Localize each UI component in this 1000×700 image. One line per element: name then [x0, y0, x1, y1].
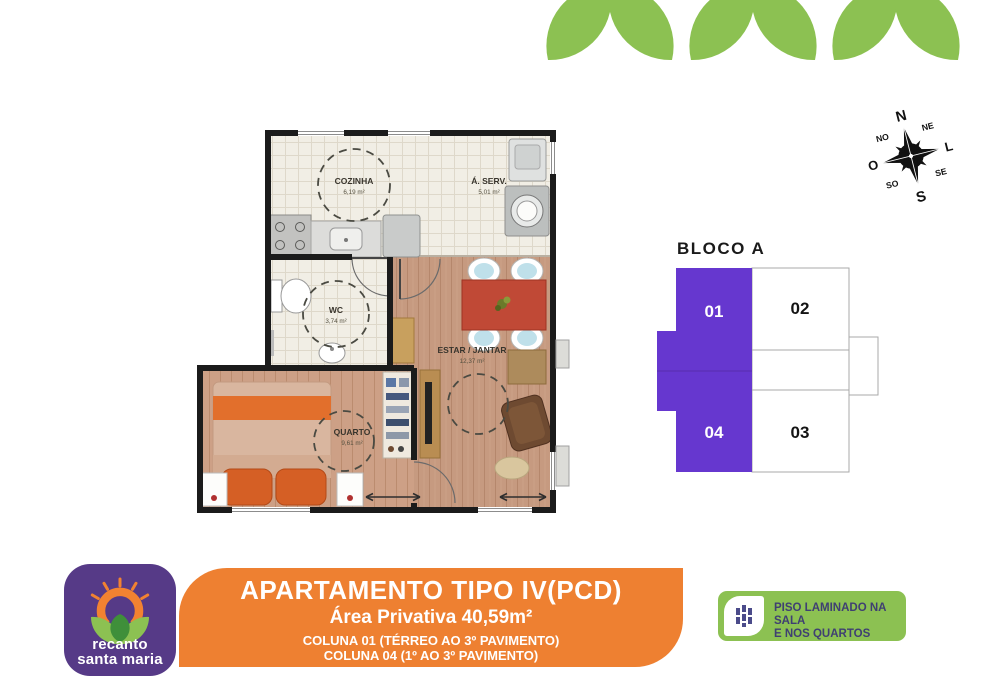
- cabinet-icon: [391, 318, 414, 363]
- compass-n-label: N: [894, 108, 908, 126]
- badge-text-line2: E NOS QUARTOS: [774, 628, 904, 641]
- room-area-quarto: 9,61 m²: [341, 440, 362, 447]
- bloco-title: BLOCO A: [677, 239, 765, 258]
- stove-icon: [269, 215, 311, 256]
- leaves-decoration-icon: [540, 0, 970, 78]
- washing-machine-icon: [505, 186, 549, 236]
- floor-plan: COZINHA 6,19 m² Á. SERV. 5,01 m² WC 3,74…: [190, 118, 590, 538]
- compass-se-label: SE: [934, 166, 948, 179]
- bloco-unit-02-label: 02: [791, 299, 810, 318]
- bloco-unit-01-label: 01: [705, 302, 724, 321]
- banner-coluna1: COLUNA 01 (TÉRREO AO 3º PAVIMENTO): [179, 633, 683, 648]
- banner-note: *Unidades PCD contemplam apenas 1 quarto: [179, 667, 683, 682]
- room-label-aserv: Á. SERV.: [471, 176, 506, 186]
- logo-text-line1: recanto: [64, 637, 176, 652]
- brand-logo: recanto santa maria: [64, 564, 176, 676]
- room-label-wc: WC: [329, 305, 343, 315]
- logo-text: recanto santa maria: [64, 637, 176, 667]
- ac-ledge: [556, 340, 569, 368]
- tv-unit-icon: [420, 370, 440, 458]
- banner-title: APARTAMENTO TIPO IV(PCD): [179, 575, 683, 606]
- compass-sw-label: SO: [885, 178, 900, 191]
- flyer-page: N S L O NE NO SE SO: [0, 0, 1000, 700]
- feature-badge: PISO LAMINADO NA SALA E NOS QUARTOS: [718, 591, 906, 641]
- badge-text-line1: PISO LAMINADO NA SALA: [774, 602, 904, 628]
- bloco-diagram: BLOCO A 01 02 03 04: [650, 230, 885, 480]
- room-area-estar: 12,37 m²: [460, 358, 485, 365]
- bloco-corridor: [752, 350, 849, 390]
- room-area-aserv: 5,01 m²: [478, 189, 499, 196]
- fridge-icon: [383, 215, 420, 257]
- toilet-icon: [271, 279, 311, 313]
- compass-nw-label: NO: [875, 131, 890, 144]
- room-area-wc: 3,74 m²: [325, 318, 346, 325]
- banner-coluna2: COLUNA 04 (1º AO 3º PAVIMENTO): [179, 648, 683, 663]
- laminate-leaf-icon: [724, 596, 764, 636]
- banner-area: Área Privativa 40,59m²: [179, 607, 683, 629]
- bloco-unit-04-label: 04: [705, 423, 724, 442]
- sink-counter-icon: [311, 221, 381, 257]
- wardrobe-icon: [383, 372, 412, 458]
- logo-text-line2: santa maria: [64, 652, 176, 667]
- compass-w-label: O: [866, 157, 879, 174]
- ac-ledge: [556, 446, 569, 486]
- room-label-cozinha: COZINHA: [335, 176, 374, 186]
- badge-text: PISO LAMINADO NA SALA E NOS QUARTOS: [774, 602, 904, 641]
- compass-ne-label: NE: [921, 120, 935, 133]
- bloco-unit-03-label: 03: [791, 423, 810, 442]
- laundry-tank-icon: [509, 139, 546, 181]
- compass-s-label: S: [915, 188, 929, 206]
- apartment-banner: APARTAMENTO TIPO IV(PCD) Área Privativa …: [179, 568, 683, 667]
- compass-e-label: L: [943, 138, 954, 154]
- laminate-floor-icon: [732, 604, 756, 628]
- room-label-quarto: QUARTO: [334, 427, 371, 437]
- compass-rose-icon: N S L O NE NO SE SO: [850, 92, 972, 220]
- bloco-extension: [849, 337, 878, 395]
- room-area-cozinha: 6,19 m²: [343, 189, 364, 196]
- room-label-estar: ESTAR / JANTAR: [437, 345, 506, 355]
